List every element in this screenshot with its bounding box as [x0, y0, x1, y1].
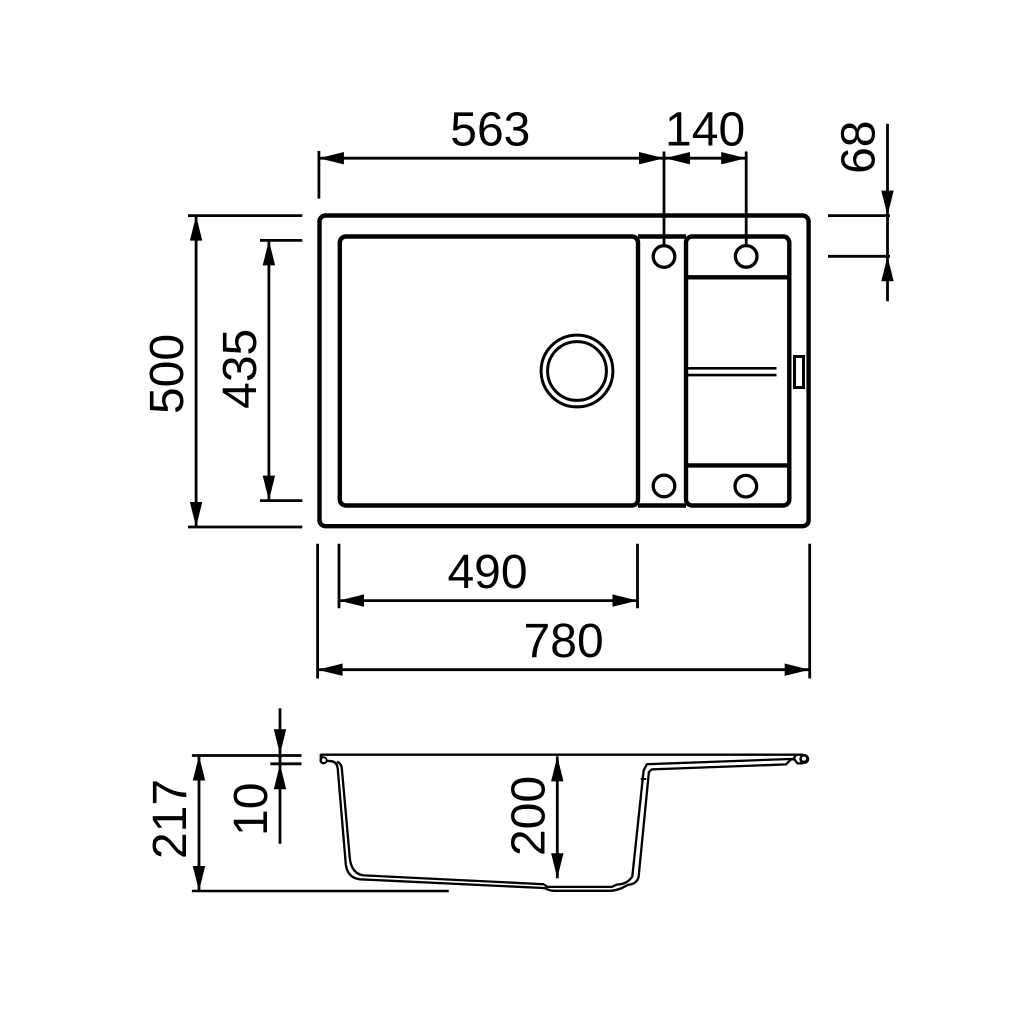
- svg-text:563: 563: [450, 104, 530, 157]
- svg-text:217: 217: [144, 779, 197, 859]
- svg-text:500: 500: [141, 334, 194, 414]
- svg-text:490: 490: [447, 546, 527, 599]
- svg-text:435: 435: [214, 329, 267, 409]
- svg-text:140: 140: [665, 104, 745, 157]
- svg-text:68: 68: [833, 121, 886, 174]
- svg-text:10: 10: [225, 783, 278, 836]
- svg-text:200: 200: [502, 776, 555, 856]
- svg-text:780: 780: [524, 615, 604, 668]
